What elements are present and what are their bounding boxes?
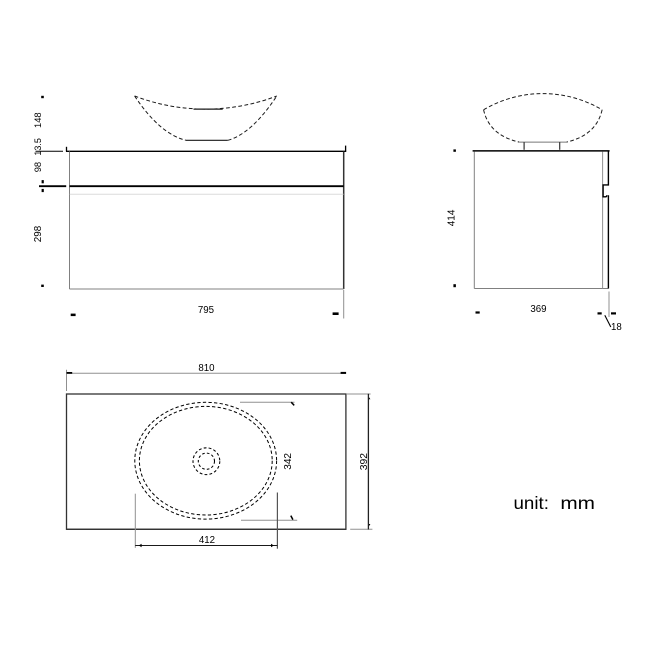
svg-text:298: 298 <box>33 225 44 242</box>
svg-text:414: 414 <box>447 209 458 226</box>
svg-text:810: 810 <box>198 363 215 374</box>
svg-text:369: 369 <box>530 304 546 315</box>
svg-text:18: 18 <box>611 322 622 333</box>
svg-text:795: 795 <box>198 305 214 316</box>
svg-text:342: 342 <box>283 453 294 470</box>
svg-text:98: 98 <box>32 162 43 172</box>
svg-text:unit:mm: unit:mm <box>514 493 596 513</box>
svg-text:148: 148 <box>32 112 43 128</box>
svg-text:13.5: 13.5 <box>33 138 43 156</box>
svg-text:412: 412 <box>199 535 215 546</box>
svg-text:392: 392 <box>359 453 370 470</box>
